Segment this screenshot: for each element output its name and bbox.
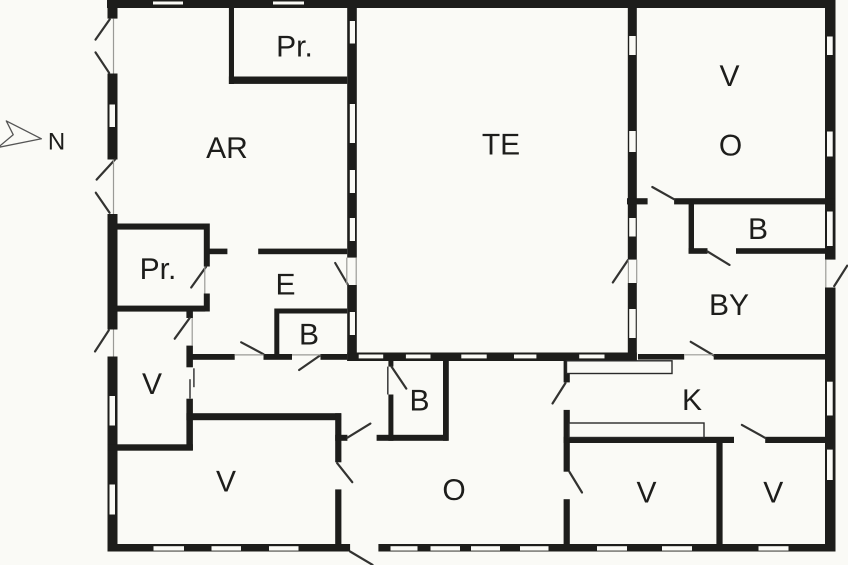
svg-text:V: V [719,60,739,93]
svg-text:V: V [763,476,783,509]
svg-text:V: V [216,465,236,498]
svg-text:V: V [636,476,656,509]
svg-text:V: V [142,368,162,401]
svg-text:BY: BY [709,289,749,322]
svg-text:B: B [748,213,768,246]
svg-text:AR: AR [206,132,248,165]
svg-text:O: O [719,130,742,163]
svg-text:N: N [48,129,65,156]
svg-text:O: O [442,474,465,507]
svg-text:B: B [299,319,319,352]
svg-text:Pr.: Pr. [140,253,177,286]
svg-text:E: E [275,268,295,301]
svg-text:Pr.: Pr. [276,31,313,64]
svg-text:B: B [409,385,429,418]
svg-text:K: K [682,384,702,417]
svg-text:TE: TE [482,129,520,162]
